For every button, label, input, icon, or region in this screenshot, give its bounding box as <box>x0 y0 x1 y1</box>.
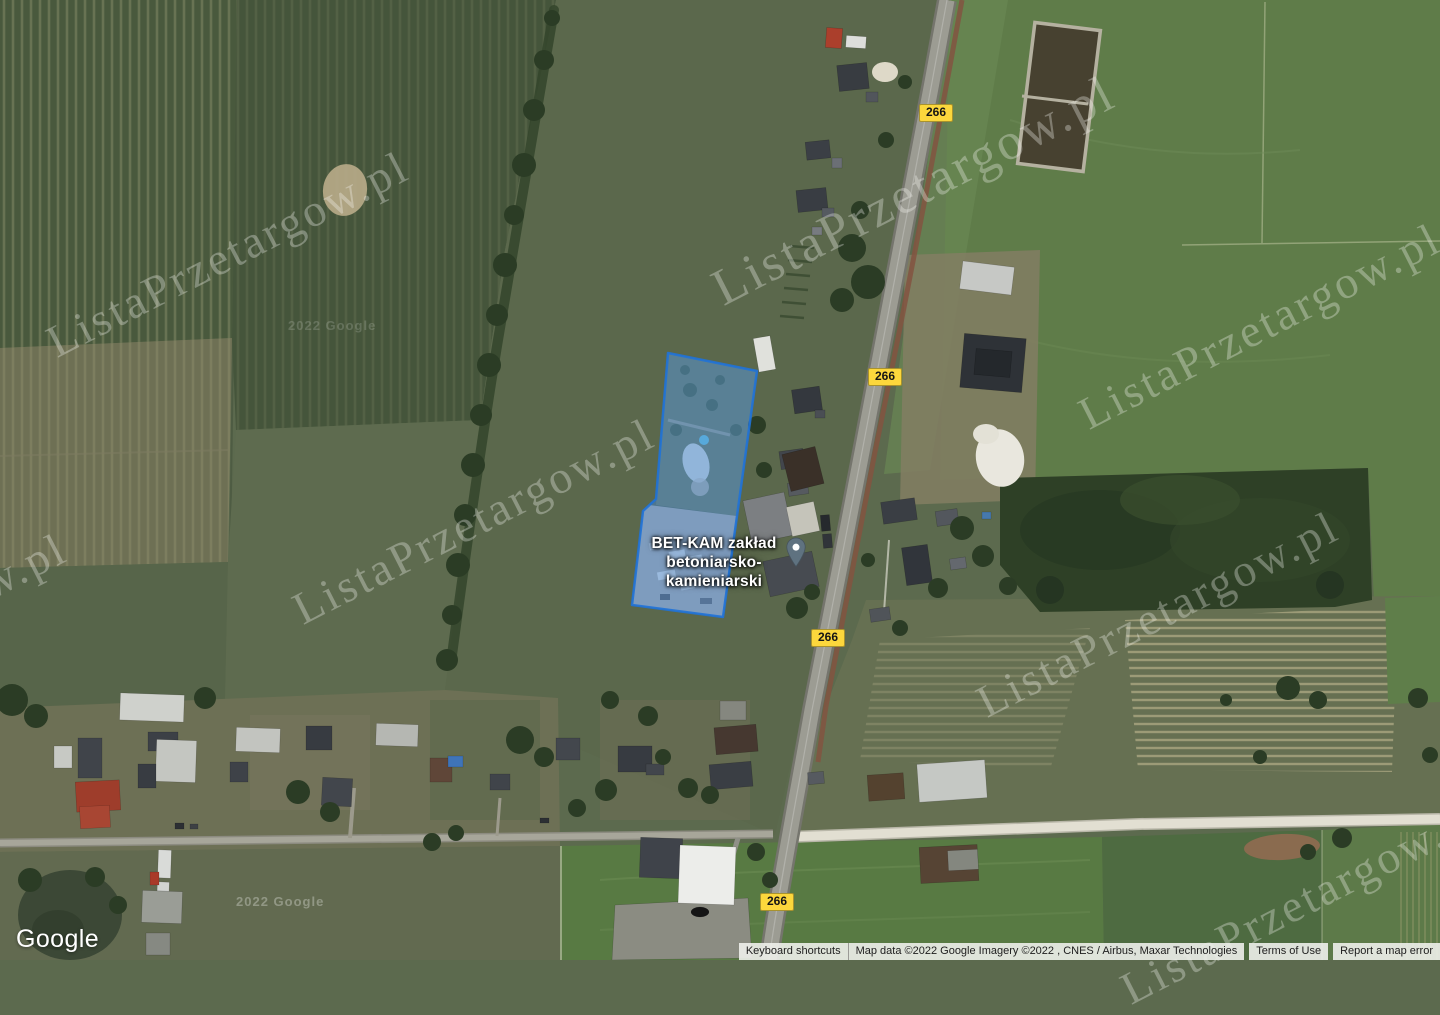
map-data-attribution: Map data ©2022 Google Imagery ©2022 , CN… <box>849 943 1245 960</box>
route-shield-266: 266 <box>811 629 845 647</box>
keyboard-shortcuts-button[interactable]: Keyboard shortcuts <box>739 943 849 960</box>
terms-of-use-link[interactable]: Terms of Use <box>1249 943 1328 960</box>
place-label-line2: betoniarsko-kamieniarski <box>625 553 803 591</box>
satellite-imagery <box>0 0 1440 960</box>
google-logo[interactable]: Google <box>16 925 99 954</box>
route-shield-266: 266 <box>868 368 902 386</box>
google-maps-satellite-view: { "map": { "place_label": { "line1": "BE… <box>0 0 1440 960</box>
report-map-error-link[interactable]: Report a map error <box>1333 943 1440 960</box>
place-label-line1: BET-KAM zakład <box>625 534 803 553</box>
place-label[interactable]: BET-KAM zakład betoniarsko-kamieniarski <box>625 534 803 591</box>
map-canvas[interactable] <box>0 0 1440 960</box>
route-shield-266: 266 <box>919 104 953 122</box>
attribution-bar: Keyboard shortcuts Map data ©2022 Google… <box>739 943 1440 960</box>
forest <box>1000 468 1372 612</box>
route-shield-266: 266 <box>760 893 794 911</box>
